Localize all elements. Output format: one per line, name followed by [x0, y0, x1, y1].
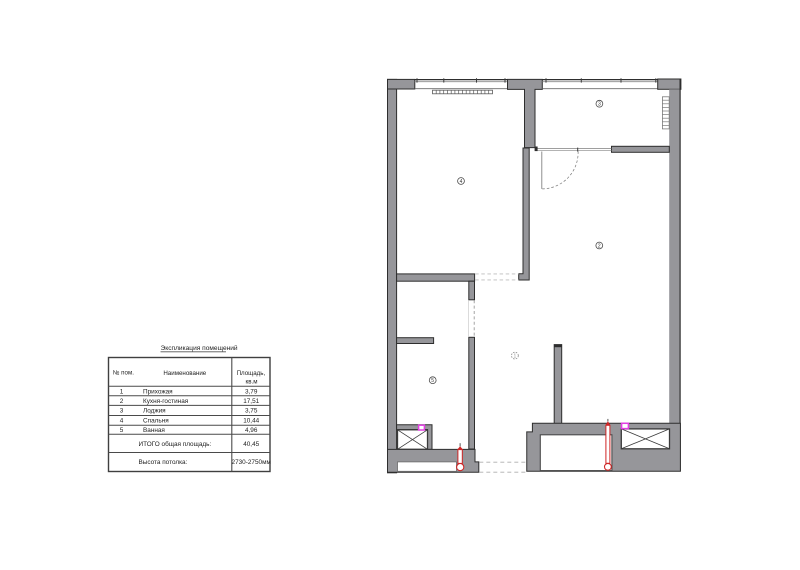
svg-text:17,51: 17,51 [243, 398, 259, 405]
svg-text:1: 1 [514, 353, 517, 359]
svg-text:кв.м: кв.м [246, 379, 258, 386]
svg-text:Кухня-гостиная: Кухня-гостиная [143, 398, 189, 405]
svg-text:4: 4 [120, 417, 124, 424]
svg-text:1: 1 [120, 388, 124, 395]
svg-text:2730-2750мм: 2730-2750мм [232, 459, 271, 466]
svg-text:5: 5 [431, 378, 434, 384]
svg-text:10,44: 10,44 [243, 417, 259, 424]
svg-text:Наименование: Наименование [163, 370, 206, 377]
svg-text:Площадь,: Площадь, [237, 370, 266, 377]
svg-text:Спальня: Спальня [143, 417, 169, 424]
svg-text:3,79: 3,79 [245, 388, 258, 395]
svg-text:Экспликация помещений: Экспликация помещений [161, 344, 238, 352]
svg-text:3,75: 3,75 [245, 408, 258, 415]
svg-text:4: 4 [460, 179, 463, 185]
svg-text:5: 5 [120, 427, 124, 434]
svg-text:№ пом.: № пом. [113, 370, 134, 377]
svg-text:Высота потолка:: Высота потолка: [139, 459, 188, 466]
svg-text:Прихожая: Прихожая [143, 388, 173, 395]
svg-text:Ванная: Ванная [143, 427, 165, 434]
svg-text:ИТОГО общая площадь:: ИТОГО общая площадь: [139, 440, 212, 448]
svg-text:2: 2 [120, 398, 124, 405]
svg-text:40,45: 40,45 [243, 441, 259, 448]
svg-text:3: 3 [598, 102, 601, 108]
svg-text:4,96: 4,96 [245, 427, 258, 434]
svg-text:3: 3 [120, 408, 124, 415]
svg-text:Лоджия: Лоджия [143, 408, 166, 415]
svg-text:2: 2 [598, 243, 601, 249]
